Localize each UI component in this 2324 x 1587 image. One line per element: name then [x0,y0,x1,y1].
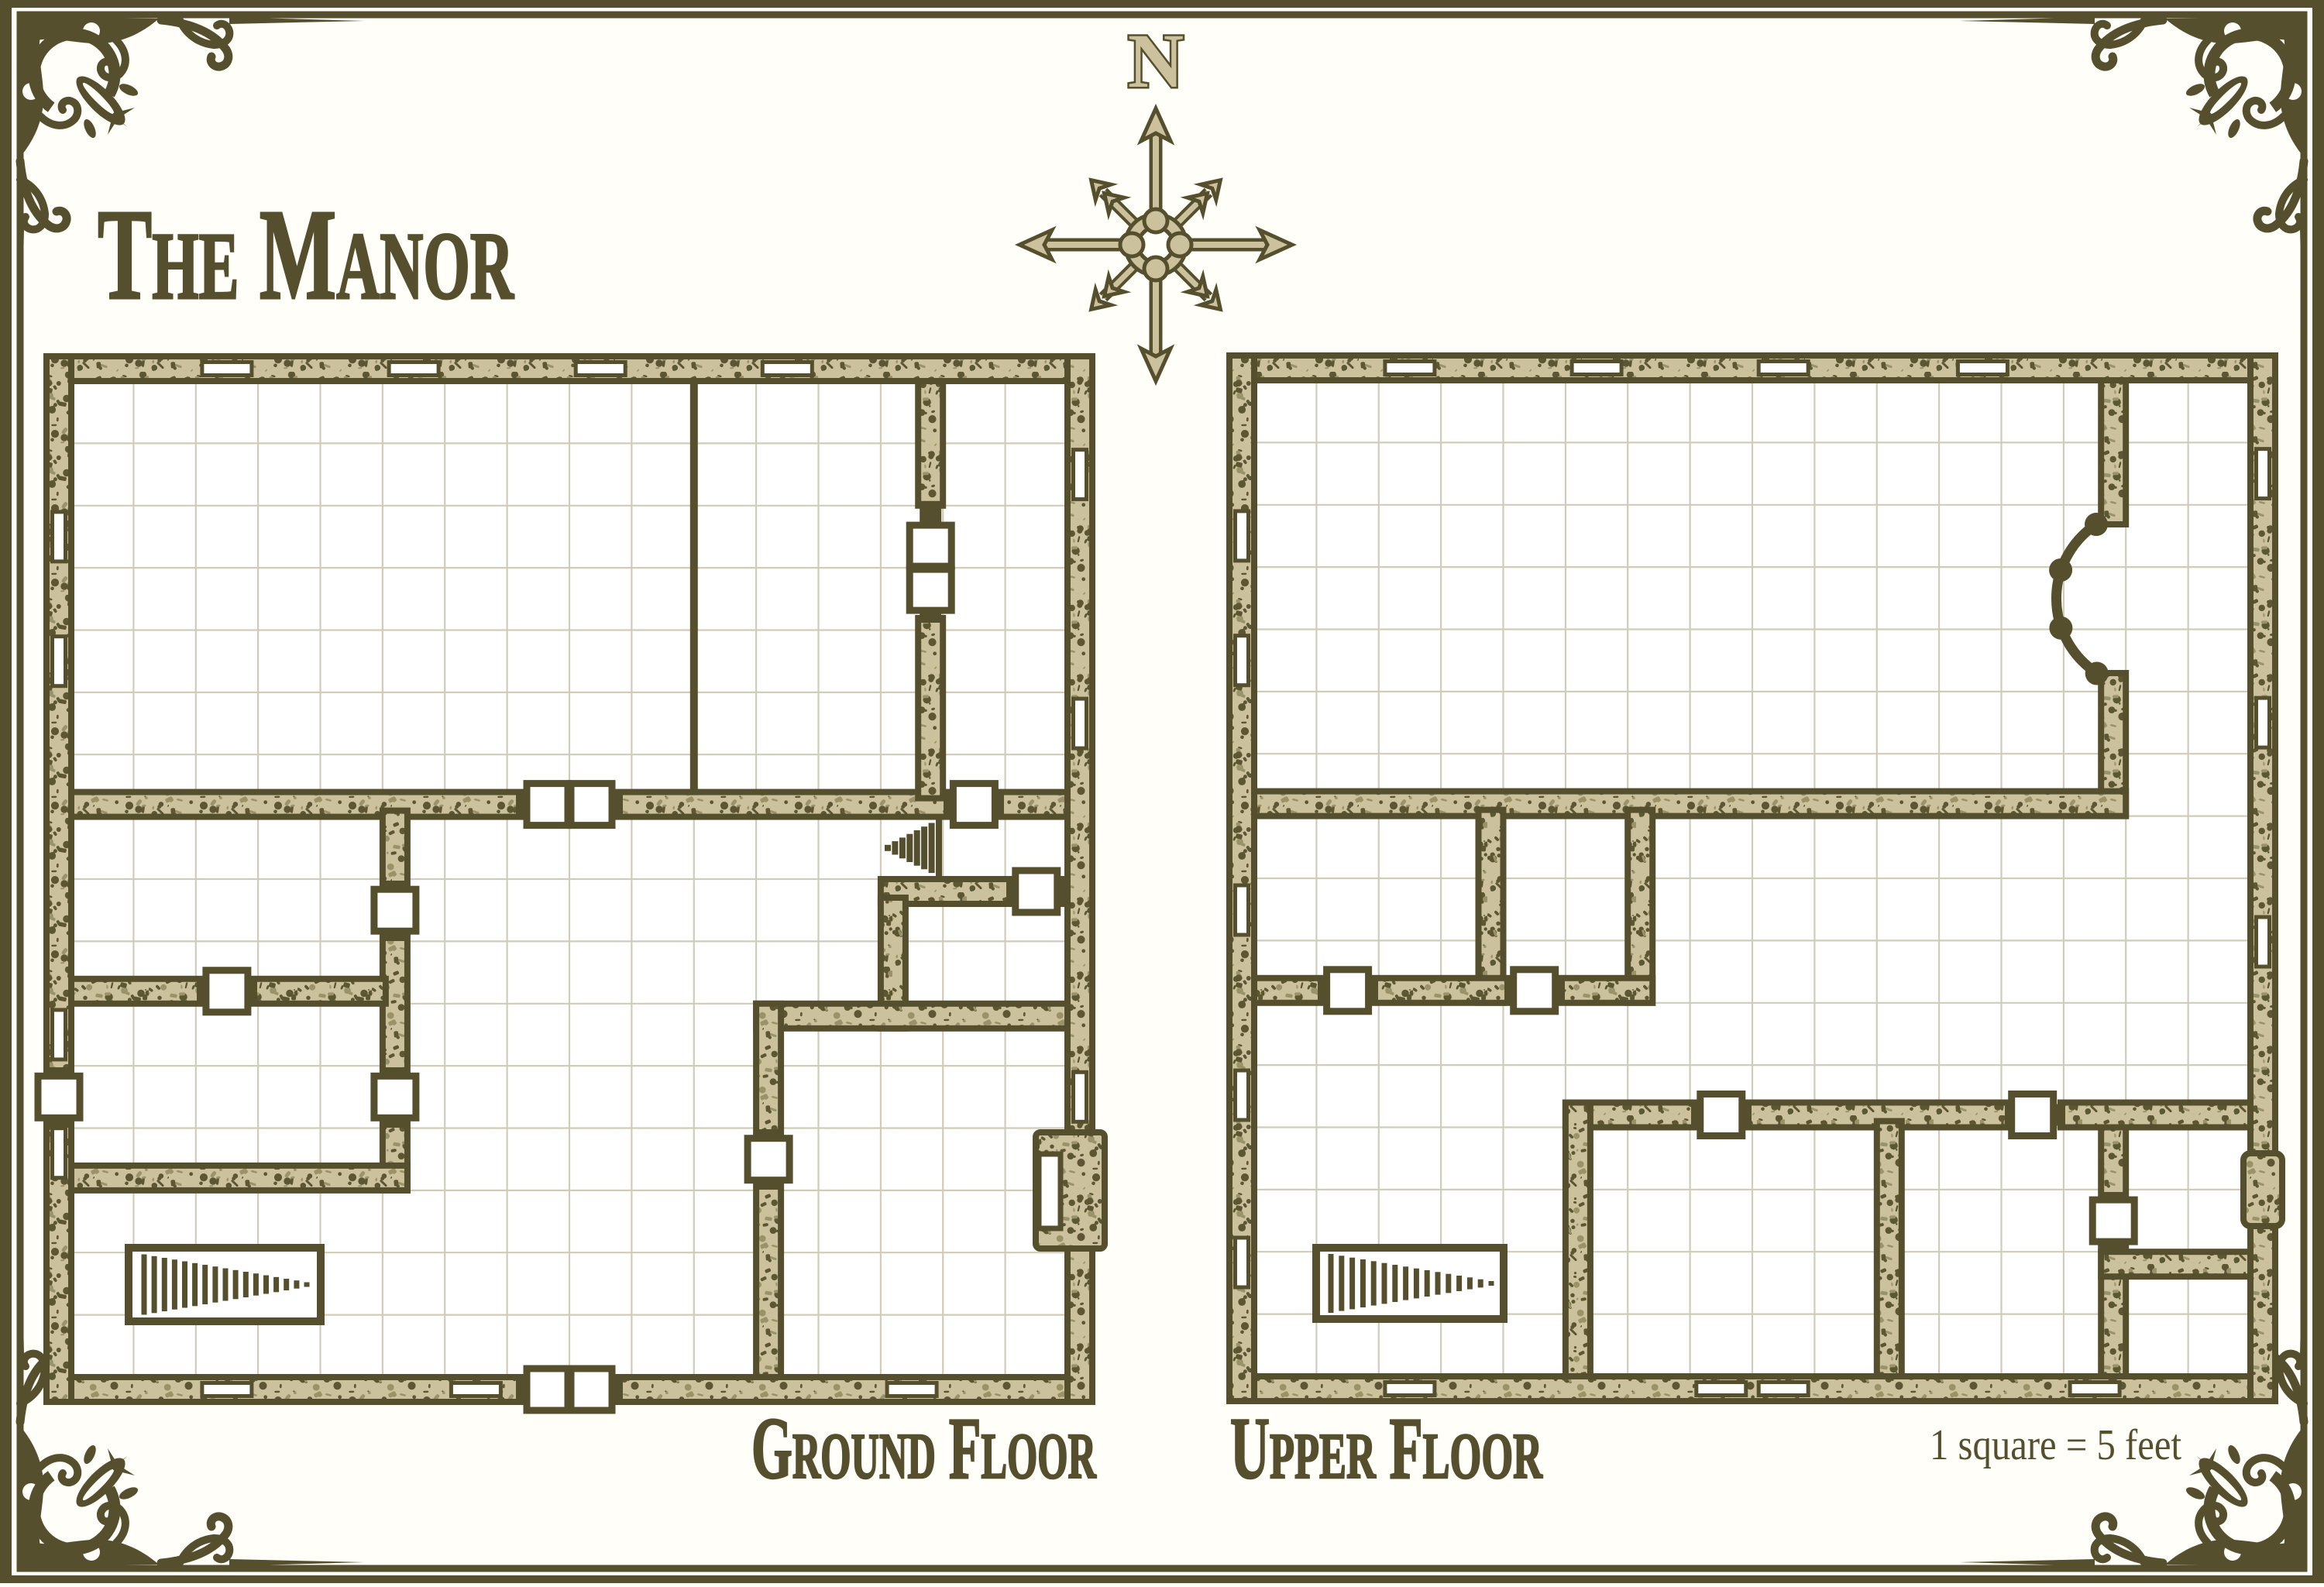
svg-text:N: N [1128,18,1184,104]
svg-text:1 square = 5 feet: 1 square = 5 feet [1930,1421,2181,1469]
